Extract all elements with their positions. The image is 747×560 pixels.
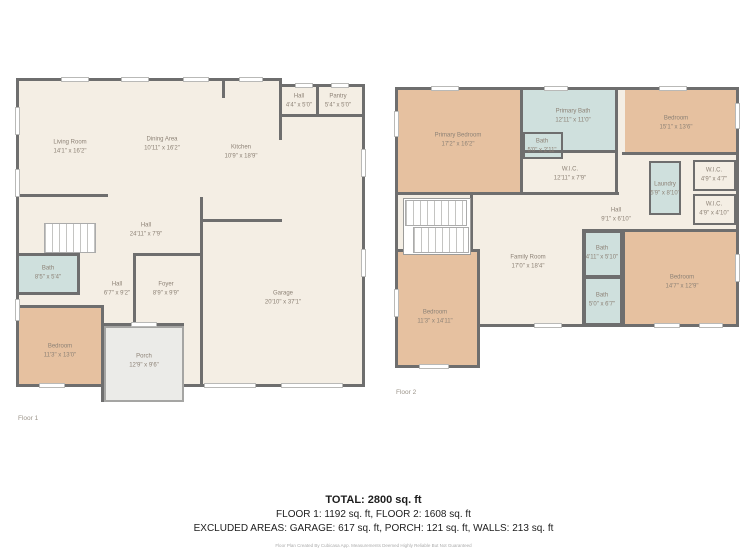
wall-segment (622, 152, 739, 155)
room-label-hall-small: Hall6'7" x 9'2" (104, 280, 130, 297)
floor2-caption: Floor 2 (396, 389, 416, 396)
wall-segment (282, 114, 365, 117)
decor: Primary Bath (555, 107, 590, 116)
wall-segment (203, 219, 282, 222)
room-label-garage: Garage20'10" x 37'1" (265, 289, 301, 306)
window-marker (395, 112, 398, 136)
decor: W.I.C. (701, 166, 727, 175)
room-label-wic-top: W.I.C.4'9" x 4'7" (701, 166, 727, 183)
decor: Porch (129, 352, 159, 361)
decor: 24'11" x 7'9" (130, 230, 162, 239)
stairs-floor2-lower-flight (413, 227, 469, 253)
decor: Primary Bedroom (435, 131, 482, 140)
area-summary: TOTAL: 2800 sq. ft FLOOR 1: 1192 sq. ft,… (0, 494, 747, 548)
window-marker (132, 323, 156, 326)
stairs-floor2-upper-flight (405, 200, 467, 226)
decor: 10'11" x 16'2" (144, 144, 180, 153)
wall-segment (200, 197, 203, 387)
window-marker (16, 300, 19, 320)
room-label-hall-mid: Hall24'11" x 7'9" (130, 221, 162, 238)
decor: Foyer (153, 280, 179, 289)
floor1-garage-area (282, 117, 365, 387)
decor: Hall (286, 92, 312, 101)
room-label-bath3: Bath4'11" x 5'10" (586, 244, 618, 261)
window-marker (296, 84, 312, 87)
room-label-pantry: Pantry5'4" x 5'0" (325, 92, 351, 109)
room-label-primary-bath: Primary Bath12'11" x 11'0" (555, 107, 590, 124)
decor: Living Room (53, 138, 86, 147)
room-label-wic-bottom: W.I.C.4'9" x 4'10" (699, 200, 729, 217)
window-marker (40, 384, 64, 387)
decor: W.I.C. (554, 165, 586, 174)
window-marker (16, 108, 19, 134)
wall-segment (477, 249, 480, 368)
window-marker (432, 87, 458, 90)
decor: 12'11" x 11'0" (555, 116, 590, 125)
window-marker (655, 324, 679, 327)
wall-segment (520, 87, 523, 195)
window-marker (736, 104, 739, 128)
decor: 17'2" x 16'2" (435, 140, 482, 149)
total-area-text: TOTAL: 2800 sq. ft (0, 494, 747, 506)
wall-segment (282, 84, 365, 87)
window-marker (62, 78, 88, 81)
decor: 11'3" x 14'11" (417, 317, 452, 326)
excluded-areas-text: EXCLUDED AREAS: GARAGE: 617 sq. ft, PORC… (0, 522, 747, 536)
decor: Dining Area (144, 135, 180, 144)
decor: 9'1" x 6'10" (601, 215, 631, 224)
wall-segment (615, 87, 618, 195)
decor: 5'0" x 6'7" (589, 300, 615, 309)
wall-segment (16, 292, 80, 295)
decor: 17'0" x 18'4" (510, 262, 545, 271)
decor: Bedroom (44, 342, 76, 351)
window-marker (535, 324, 561, 327)
decor: Bath (527, 137, 556, 146)
decor: 4'9" x 4'10" (699, 209, 729, 218)
decor: 5'9" x 8'10" (650, 189, 680, 198)
room-label-bath1: Bath8'5" x 5'4" (35, 264, 61, 281)
room-label-bedroom-f1: Bedroom11'3" x 13'0" (44, 342, 76, 359)
wall-segment (622, 229, 625, 327)
room-label-foyer: Foyer8'9" x 9'9" (153, 280, 179, 297)
decor: Bedroom (417, 308, 452, 317)
wall-segment (16, 194, 108, 197)
decor: Hall (601, 206, 631, 215)
wall-segment (582, 229, 585, 327)
decor: W.I.C. (699, 200, 729, 209)
decor: Hall (130, 221, 162, 230)
decor: Bedroom (660, 114, 693, 123)
wall-segment (316, 84, 319, 117)
wall-segment (395, 192, 523, 195)
decor: 14'1" x 16'2" (53, 147, 86, 156)
room-label-dining-area: Dining Area10'11" x 16'2" (144, 135, 180, 152)
wall-segment (16, 305, 104, 308)
decor: Garage (265, 289, 301, 298)
decor: 15'1" x 13'6" (660, 123, 693, 132)
decor: Family Room (510, 253, 545, 262)
decor: Bath (586, 244, 618, 253)
decor: 4'4" x 5'0" (286, 101, 312, 110)
window-marker (240, 78, 262, 81)
decor: 12'9" x 9'6" (129, 361, 159, 370)
decor: 14'7" x 12'9" (666, 282, 699, 291)
wall-segment (133, 253, 203, 256)
wall-segment (101, 305, 104, 402)
decor: Kitchen (225, 143, 258, 152)
wall-segment (582, 275, 624, 278)
decor: 20'10" x 37'1" (265, 298, 301, 307)
window-marker (205, 384, 255, 387)
room-label-primary-bedroom: Primary Bedroom17'2" x 16'2" (435, 131, 482, 148)
decor: 10'9" x 18'9" (225, 152, 258, 161)
wall-segment (523, 192, 619, 195)
decor: Bedroom (666, 273, 699, 282)
room-label-bath-small: Bath5'0" x 2'11" (527, 137, 556, 154)
window-marker (282, 384, 342, 387)
room-label-hall-f2: Hall9'1" x 6'10" (601, 206, 631, 223)
wall-segment (582, 229, 622, 232)
decor: Laundry (650, 180, 680, 189)
decor: 5'4" x 5'0" (325, 101, 351, 110)
room-label-wic-main: W.I.C.12'11" x 7'9" (554, 165, 586, 182)
stairs-floor1 (44, 223, 96, 253)
window-marker (332, 84, 348, 87)
window-marker (16, 170, 19, 196)
window-marker (545, 87, 567, 90)
room-label-bedroom-bottomleft: Bedroom11'3" x 14'11" (417, 308, 452, 325)
wall-segment (16, 253, 80, 256)
disclaimer-text: Floor Plan Created By Cubicasa App. Meas… (0, 543, 747, 548)
window-marker (420, 365, 448, 368)
decor: Bath (35, 264, 61, 273)
room-label-bedroom-topright: Bedroom15'1" x 13'6" (660, 114, 693, 131)
wall-segment (362, 84, 365, 387)
decor: 8'5" x 5'4" (35, 273, 61, 282)
decor: 4'11" x 5'10" (586, 253, 618, 262)
wall-segment (77, 253, 80, 295)
decor: Bath (589, 291, 615, 300)
window-marker (184, 78, 208, 81)
window-marker (736, 255, 739, 281)
wall-segment (222, 78, 225, 98)
window-marker (660, 87, 686, 90)
wall-segment (133, 253, 136, 326)
room-label-bath4: Bath5'0" x 6'7" (589, 291, 615, 308)
wall-segment (622, 229, 736, 232)
decor: 5'0" x 2'11" (527, 146, 556, 155)
decor: 6'7" x 9'2" (104, 289, 130, 298)
room-label-hall-top: Hall4'4" x 5'0" (286, 92, 312, 109)
floor-areas-text: FLOOR 1: 1192 sq. ft, FLOOR 2: 1608 sq. … (0, 508, 747, 522)
room-label-living-room: Living Room14'1" x 16'2" (53, 138, 86, 155)
wall-segment (279, 78, 282, 140)
room-label-porch: Porch12'9" x 9'6" (129, 352, 159, 369)
window-marker (700, 324, 722, 327)
window-marker (122, 78, 148, 81)
room-label-laundry: Laundry5'9" x 8'10" (650, 180, 680, 197)
floor1-caption: Floor 1 (18, 415, 38, 422)
decor: Hall (104, 280, 130, 289)
decor: 8'9" x 9'9" (153, 289, 179, 298)
room-label-bedroom-bottomright: Bedroom14'7" x 12'9" (666, 273, 699, 290)
room-label-kitchen: Kitchen10'9" x 18'9" (225, 143, 258, 160)
decor: 12'11" x 7'9" (554, 174, 586, 183)
window-marker (362, 250, 365, 276)
floorplan-image: Living Room14'1" x 16'2" Dining Area10'1… (0, 0, 747, 560)
window-marker (362, 150, 365, 176)
room-label-family-room: Family Room17'0" x 18'4" (510, 253, 545, 270)
decor: 11'3" x 13'0" (44, 351, 76, 360)
decor: Pantry (325, 92, 351, 101)
decor: 4'9" x 4'7" (701, 175, 727, 184)
window-marker (395, 290, 398, 316)
